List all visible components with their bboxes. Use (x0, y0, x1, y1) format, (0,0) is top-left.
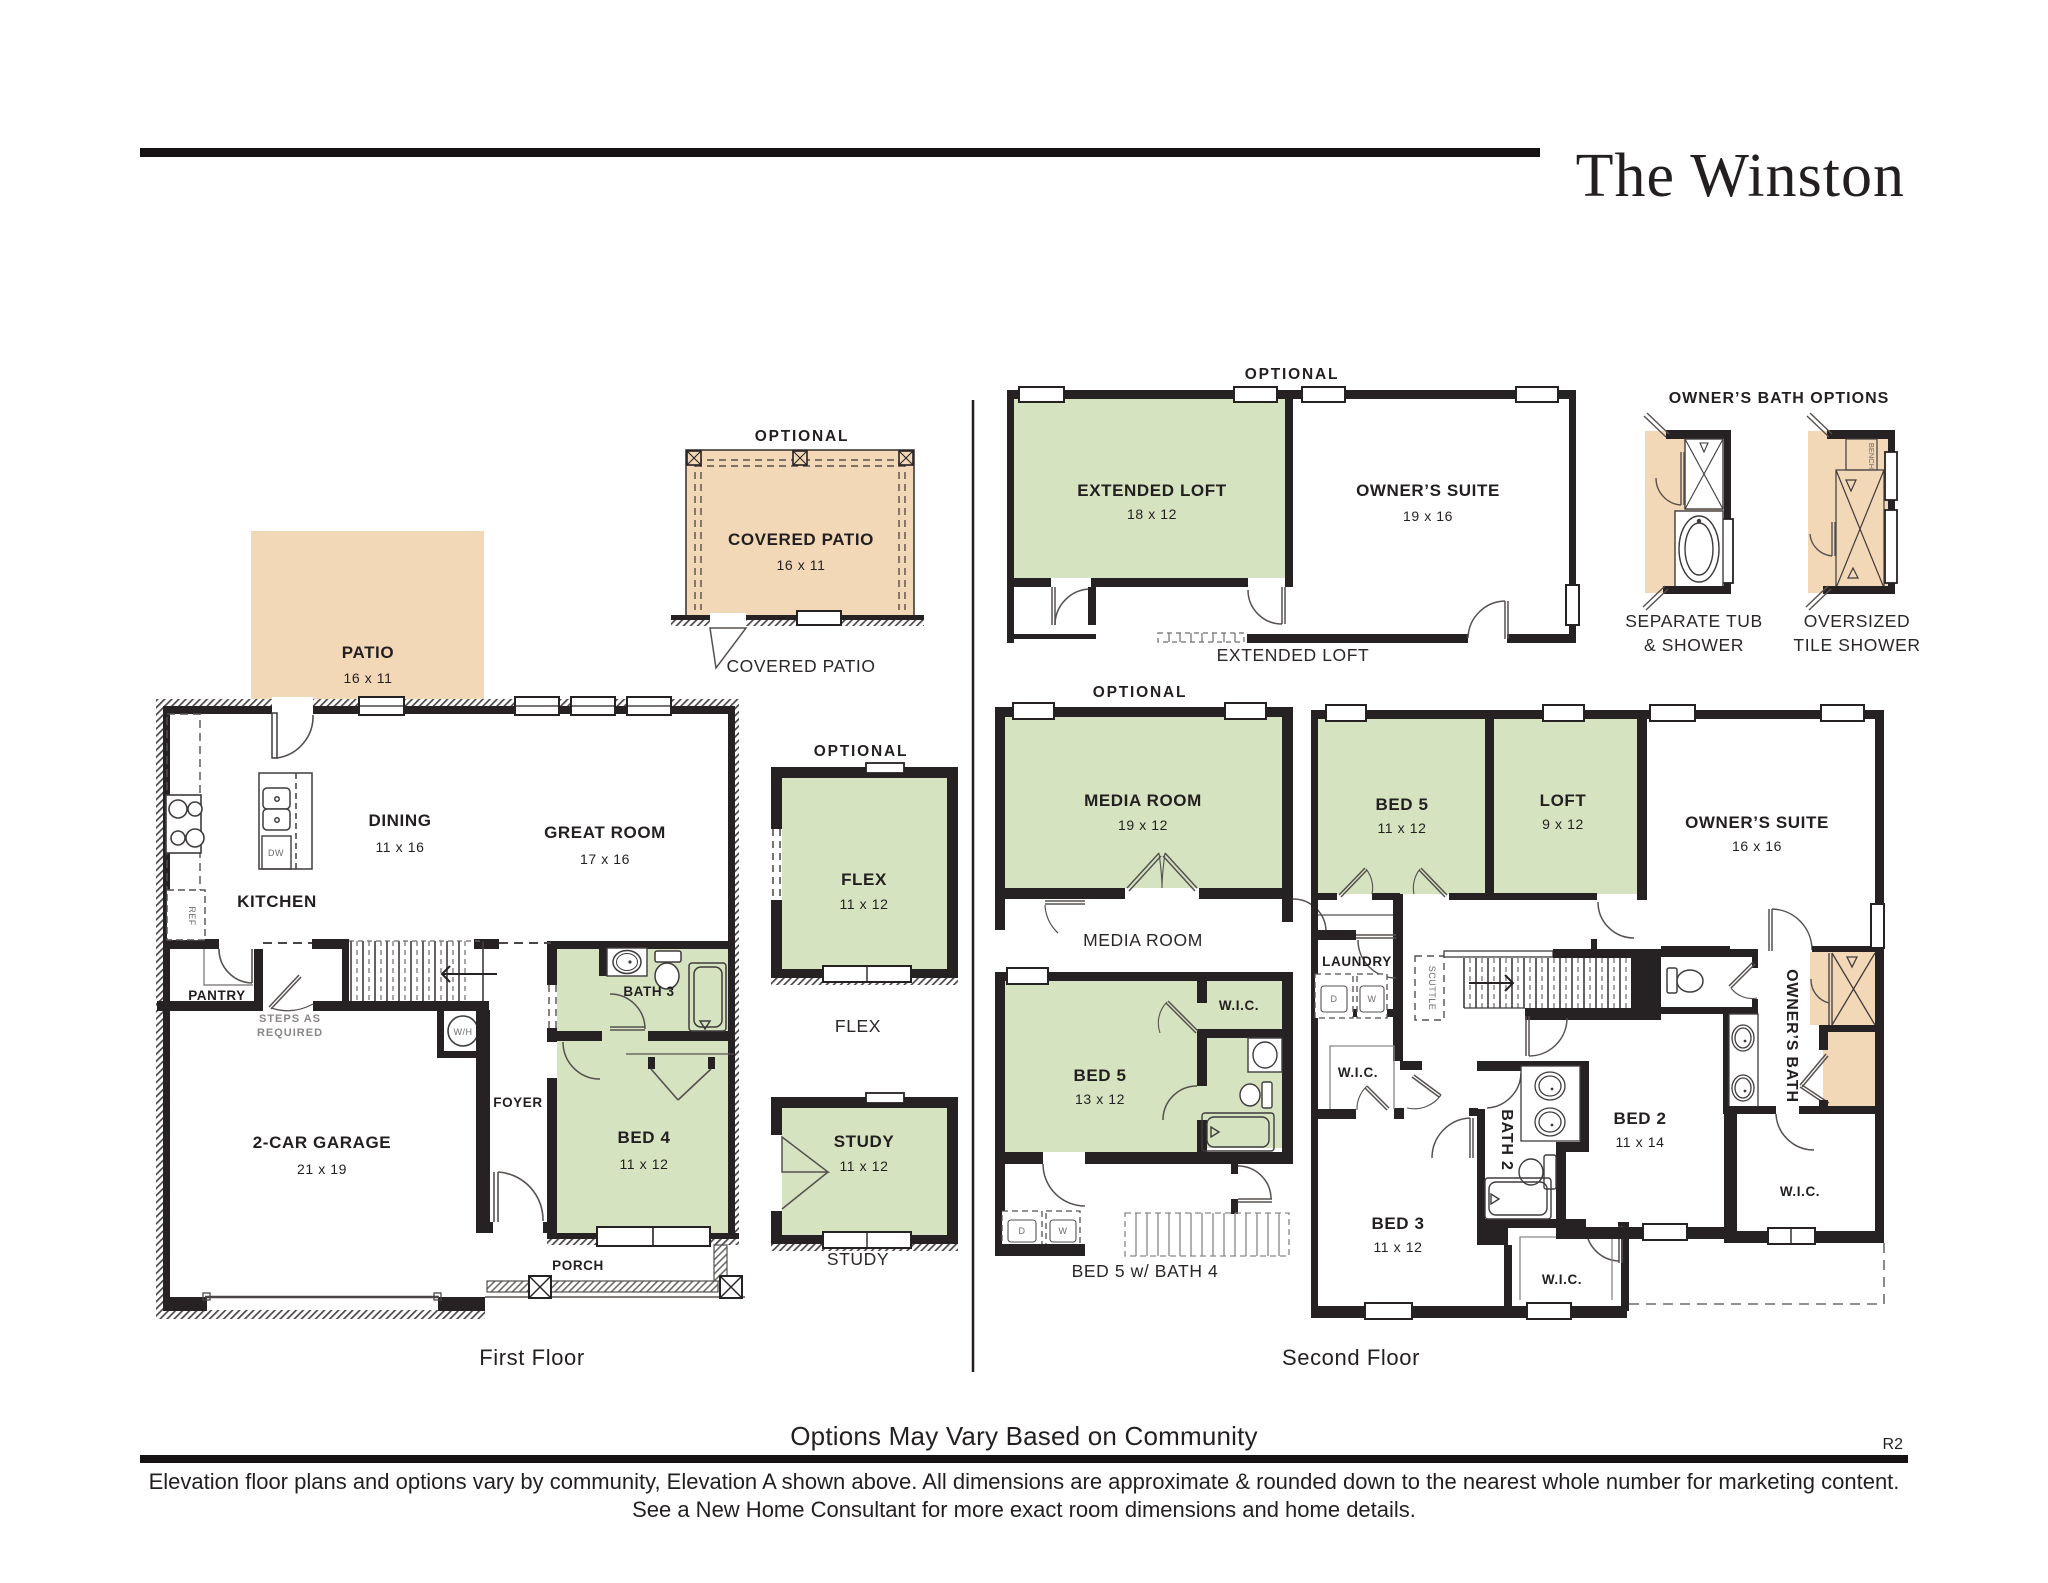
svg-text:OWNER’S BATH OPTIONS: OWNER’S BATH OPTIONS (1669, 390, 1890, 407)
svg-text:STUDY: STUDY (834, 1132, 895, 1151)
svg-text:16 x 11: 16 x 11 (776, 557, 825, 573)
svg-text:W.I.C.: W.I.C. (1338, 1065, 1378, 1080)
svg-text:STUDY: STUDY (827, 1249, 889, 1269)
svg-text:D: D (1019, 1226, 1026, 1236)
svg-text:OPTIONAL: OPTIONAL (755, 428, 849, 445)
svg-text:BED 5: BED 5 (1375, 795, 1428, 814)
svg-text:TILE SHOWER: TILE SHOWER (1793, 635, 1920, 655)
svg-text:W.I.C.: W.I.C. (1780, 1184, 1820, 1199)
svg-text:Second Floor: Second Floor (1282, 1345, 1420, 1370)
svg-text:BED 5: BED 5 (1073, 1066, 1126, 1085)
svg-text:SEPARATE TUB: SEPARATE TUB (1625, 611, 1763, 631)
svg-text:R2: R2 (1883, 1436, 1904, 1453)
svg-text:W: W (1059, 1226, 1068, 1236)
svg-text:OWNER’S SUITE: OWNER’S SUITE (1356, 481, 1500, 500)
svg-text:16 x 11: 16 x 11 (343, 670, 392, 686)
svg-text:STEPS AS: STEPS AS (259, 1013, 321, 1025)
svg-text:BED 3: BED 3 (1371, 1214, 1424, 1233)
svg-text:BATH 3: BATH 3 (623, 984, 674, 999)
svg-text:21 x 19: 21 x 19 (297, 1161, 347, 1177)
svg-text:19 x 16: 19 x 16 (1403, 508, 1453, 524)
svg-text:2-CAR GARAGE: 2-CAR GARAGE (253, 1133, 392, 1152)
svg-text:DW: DW (268, 848, 284, 858)
svg-text:11 x 12: 11 x 12 (1377, 820, 1426, 836)
svg-text:MEDIA ROOM: MEDIA ROOM (1083, 930, 1203, 950)
svg-text:OPTIONAL: OPTIONAL (1245, 366, 1339, 383)
svg-text:See a New Home Consultant for: See a New Home Consultant for more exact… (632, 1497, 1416, 1522)
svg-text:D: D (1331, 994, 1338, 1004)
svg-text:BED 5 w/ BATH 4: BED 5 w/ BATH 4 (1072, 1261, 1219, 1281)
svg-text:18 x 12: 18 x 12 (1127, 506, 1177, 522)
svg-text:REF: REF (187, 906, 197, 926)
svg-text:PANTRY: PANTRY (188, 988, 246, 1003)
svg-text:OPTIONAL: OPTIONAL (1093, 684, 1187, 701)
svg-text:11 x 12: 11 x 12 (619, 1156, 668, 1172)
svg-text:COVERED PATIO: COVERED PATIO (726, 656, 875, 676)
svg-text:KITCHEN: KITCHEN (237, 892, 317, 911)
svg-text:First Floor: First Floor (479, 1345, 585, 1370)
svg-text:13 x 12: 13 x 12 (1075, 1091, 1125, 1107)
svg-text:OWNER’S SUITE: OWNER’S SUITE (1685, 813, 1829, 832)
svg-text:OPTIONAL: OPTIONAL (814, 743, 908, 760)
svg-text:Options May Vary Based on Comm: Options May Vary Based on Community (790, 1421, 1257, 1451)
svg-text:LAUNDRY: LAUNDRY (1322, 954, 1392, 969)
svg-text:W.I.C.: W.I.C. (1542, 1272, 1582, 1287)
svg-text:BED 2: BED 2 (1613, 1109, 1666, 1128)
svg-text:11 x 12: 11 x 12 (1373, 1239, 1422, 1255)
svg-text:19 x 12: 19 x 12 (1118, 817, 1168, 833)
svg-text:REQUIRED: REQUIRED (257, 1027, 323, 1039)
svg-text:16 x 16: 16 x 16 (1732, 838, 1782, 854)
svg-text:OVERSIZED: OVERSIZED (1804, 611, 1911, 631)
svg-text:BED 4: BED 4 (617, 1128, 670, 1147)
svg-text:11 x 12: 11 x 12 (839, 1158, 888, 1174)
svg-text:FLEX: FLEX (835, 1016, 881, 1036)
svg-text:W/H: W/H (454, 1027, 473, 1037)
svg-text:GREAT ROOM: GREAT ROOM (544, 823, 666, 842)
svg-text:PORCH: PORCH (552, 1258, 604, 1273)
svg-text:OWNER’S BATH: OWNER’S BATH (1783, 969, 1800, 1103)
svg-text:9 x 12: 9 x 12 (1542, 816, 1584, 832)
svg-text:W.I.C.: W.I.C. (1219, 998, 1259, 1013)
svg-text:COVERED PATIO: COVERED PATIO (728, 530, 874, 549)
svg-text:W: W (1368, 994, 1377, 1004)
svg-text:11 x 14: 11 x 14 (1615, 1134, 1664, 1150)
svg-text:17 x 16: 17 x 16 (580, 851, 630, 867)
svg-text:11 x 12: 11 x 12 (839, 896, 888, 912)
svg-text:SCUTTLE: SCUTTLE (1427, 966, 1437, 1011)
svg-text:FLEX: FLEX (841, 870, 887, 889)
svg-text:BATH 2: BATH 2 (1498, 1109, 1515, 1170)
svg-text:FOYER: FOYER (493, 1095, 543, 1110)
svg-text:MEDIA ROOM: MEDIA ROOM (1084, 791, 1202, 810)
svg-text:BENCH: BENCH (1867, 443, 1876, 469)
svg-text:EXTENDED LOFT: EXTENDED LOFT (1077, 481, 1226, 500)
svg-text:& SHOWER: & SHOWER (1644, 635, 1744, 655)
svg-text:Elevation floor plans and opti: Elevation floor plans and options vary b… (149, 1469, 1900, 1494)
svg-text:LOFT: LOFT (1540, 791, 1587, 810)
svg-text:11 x 16: 11 x 16 (375, 839, 424, 855)
svg-text:The Winston: The Winston (1576, 142, 1905, 210)
svg-text:PATIO: PATIO (342, 643, 394, 662)
svg-text:EXTENDED LOFT: EXTENDED LOFT (1217, 645, 1370, 665)
svg-text:DINING: DINING (368, 811, 431, 830)
